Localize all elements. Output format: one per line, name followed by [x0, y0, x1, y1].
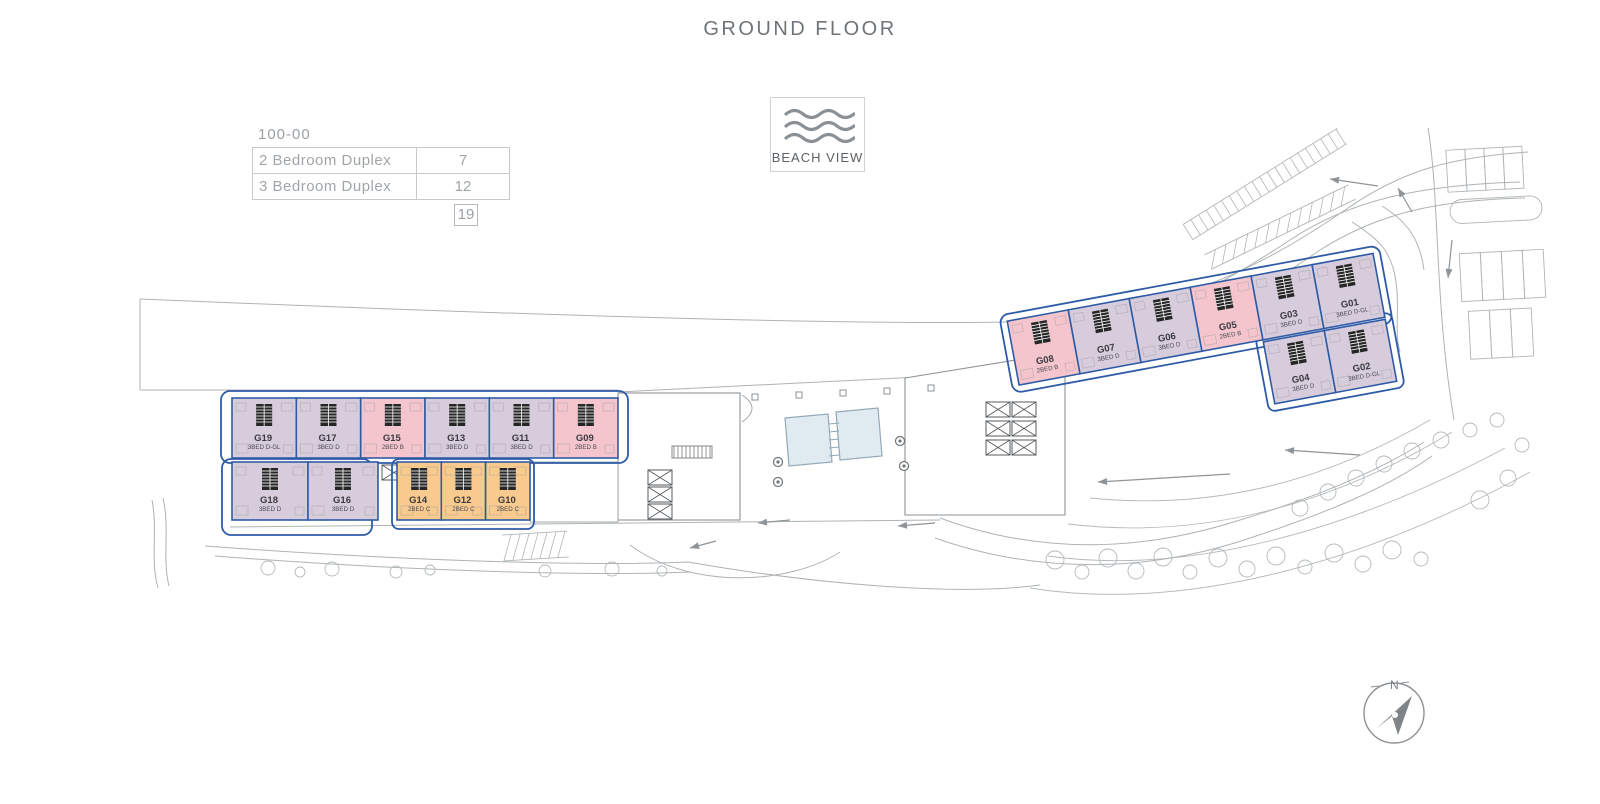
unit-G01[interactable]: G013BED D-GL [1312, 253, 1385, 328]
unit-G04[interactable]: G043BED D [1263, 331, 1335, 404]
unit-type-label: 3BED D [332, 506, 355, 513]
stair-icon [500, 468, 516, 490]
unit-id-label: G15 [383, 433, 402, 444]
unit-type-label: 3BED D [446, 444, 469, 451]
unit-G09[interactable]: G092BED B [554, 398, 618, 458]
tree-icon [1267, 547, 1285, 565]
stair-icon [385, 404, 401, 426]
tree-icon [1414, 552, 1428, 566]
stair-icon [449, 404, 465, 426]
tree-icon [1128, 563, 1144, 579]
tree-icon [1183, 565, 1197, 579]
unit-G02[interactable]: G023BED D-GL [1324, 319, 1396, 392]
compass-north-label: N [1390, 678, 1399, 692]
tree-icon [261, 561, 275, 575]
tree-icon [1075, 565, 1089, 579]
unit-G05[interactable]: G052BED B [1190, 276, 1263, 351]
unit-id-label: G18 [260, 495, 278, 506]
floor-plan-page: GROUND FLOOR 100-00 2 Bedroom Duplex 7 3… [0, 0, 1600, 804]
unit-id-label: G19 [254, 433, 272, 444]
unit-id-label: G16 [333, 495, 351, 506]
road-arrow-icon [1445, 240, 1452, 278]
unit-G07[interactable]: G073BED D [1068, 299, 1141, 374]
compass: N [1364, 678, 1424, 743]
tree-icon [1433, 432, 1449, 448]
tree-icon [1292, 500, 1308, 516]
unit-id-label: G12 [453, 495, 471, 506]
unit-G12[interactable]: G122BED C [441, 462, 485, 520]
tree-icon [1325, 544, 1343, 562]
unit-G18[interactable]: G183BED D [232, 462, 308, 520]
tree-icon [1383, 541, 1401, 559]
tree-icon [1154, 548, 1172, 566]
unit-id-label: G10 [498, 495, 516, 506]
road-arrow-icon [898, 522, 935, 529]
stair-icon [411, 468, 427, 490]
tree-icon [1376, 456, 1392, 472]
swimming-pools [785, 408, 882, 466]
unit-id-label: G17 [319, 433, 337, 444]
tree-icon [1355, 556, 1371, 572]
unit-type-label: 2BED C [408, 506, 431, 513]
tree-icon [1471, 491, 1489, 509]
unit-G14[interactable]: G142BED C [397, 462, 441, 520]
unit-type-label: 2BED C [452, 506, 475, 513]
road-arrow-icon [690, 541, 716, 549]
unit-G10[interactable]: G102BED C [486, 462, 530, 520]
unit-id-label: G11 [512, 433, 530, 444]
tree-icon [1463, 423, 1477, 437]
unit-G19[interactable]: G193BED D-GL [232, 398, 296, 458]
unit-type-label: 2BED B [575, 444, 597, 451]
unit-G11[interactable]: G113BED D [489, 398, 553, 458]
unit-G16[interactable]: G163BED D [308, 462, 378, 520]
reception-desk [742, 395, 752, 422]
stair-icon [455, 468, 471, 490]
tree-icon [425, 565, 435, 575]
left-wing-bottom-row: G183BED DG163BED DG142BED CG122BED CG102… [232, 462, 530, 520]
column-icon [752, 394, 758, 400]
unit-type-label: 2BED C [497, 506, 520, 513]
stair-icon [262, 468, 278, 490]
road-arrow-icon [758, 519, 790, 526]
road-arrow-icon [1285, 447, 1360, 455]
column-icon [840, 390, 846, 396]
unit-id-label: G14 [409, 495, 428, 506]
tree-icon [1490, 413, 1504, 427]
stair-icon [514, 404, 530, 426]
unit-G08[interactable]: G082BED B [1007, 310, 1080, 385]
unit-type-label: 3BED D-GL [248, 444, 281, 451]
column-icon [884, 388, 890, 394]
stair-icon [335, 468, 351, 490]
stair-icon [578, 404, 594, 426]
crosswalk-hatch-bottom [502, 531, 569, 561]
unit-G17[interactable]: G173BED D [296, 398, 360, 458]
unit-id-label: G09 [576, 433, 594, 444]
unit-G03[interactable]: G033BED D [1251, 265, 1324, 340]
unit-G13[interactable]: G133BED D [425, 398, 489, 458]
tree-icon [1404, 443, 1420, 459]
stair-icon [256, 404, 272, 426]
tree-icon [1046, 551, 1064, 569]
unit-G15[interactable]: G152BED B [361, 398, 425, 458]
unit-type-label: 2BED B [382, 444, 404, 451]
left-wing-top-row: G193BED D-GLG173BED DG152BED BG133BED DG… [232, 398, 618, 458]
tree-icon [539, 565, 551, 577]
unit-id-label: G13 [447, 433, 465, 444]
tree-icon [1239, 561, 1255, 577]
site-plan-drawing: G193BED D-GLG173BED DG152BED BG133BED DG… [0, 0, 1600, 804]
stair-icon [321, 404, 337, 426]
unit-G06[interactable]: G063BED D [1129, 287, 1202, 362]
column-icon [796, 392, 802, 398]
road-arrow-icon [1330, 177, 1378, 186]
unit-type-label: 3BED D [317, 444, 340, 451]
crosswalk-hatch-top [1183, 128, 1347, 239]
tree-icon [1515, 438, 1529, 452]
unit-type-label: 3BED D [510, 444, 533, 451]
road-arrow-icon [1398, 188, 1412, 212]
tree-icon [295, 567, 305, 577]
road-arrow-icon [1098, 474, 1230, 485]
tree-icon [657, 566, 667, 576]
unit-type-label: 3BED D [259, 506, 282, 513]
